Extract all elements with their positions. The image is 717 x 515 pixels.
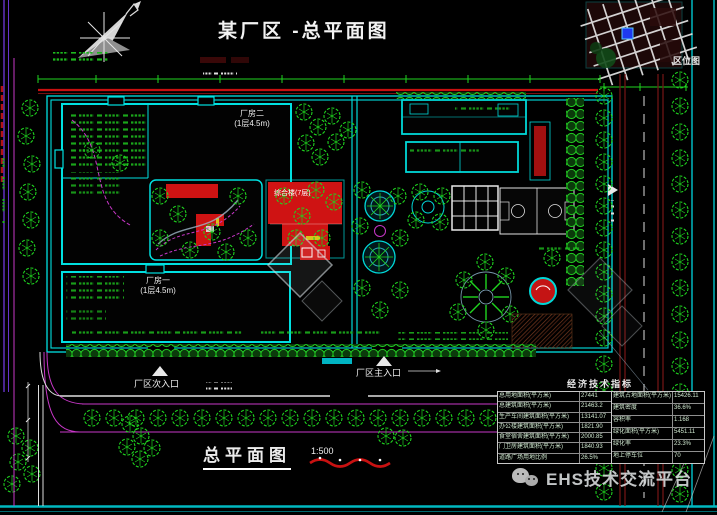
title-underline-smudge2 bbox=[231, 57, 249, 63]
pergola-structure bbox=[452, 186, 498, 230]
table-row: 地上停车位70 bbox=[612, 451, 704, 463]
central-garden bbox=[150, 180, 262, 260]
street-trees-west bbox=[18, 100, 40, 284]
table-value: 27441 bbox=[579, 392, 611, 401]
table-value: 13141.07 bbox=[579, 413, 611, 422]
table-label: 食堂宿舍建筑面积(平方米) bbox=[498, 433, 579, 442]
annotation-row bbox=[260, 330, 380, 338]
tree-cluster-corner bbox=[4, 416, 160, 492]
gazebo-circle bbox=[408, 184, 450, 230]
top-annotation bbox=[203, 68, 237, 76]
annotation bbox=[410, 146, 480, 154]
scale-bar bbox=[310, 457, 390, 467]
table-value: 26.5% bbox=[579, 454, 611, 463]
hedge-top bbox=[396, 92, 526, 99]
table-row: 总建筑面积(平方米)21463.2 bbox=[498, 401, 611, 411]
tree-cluster-top-middle bbox=[296, 104, 356, 165]
table-value: 1821.90 bbox=[579, 423, 611, 432]
table-row: 绿化面积(平方米)5451.11 bbox=[612, 427, 704, 439]
table-label: 绿化面积(平方米) bbox=[612, 428, 672, 439]
table-label: 总建筑面积(平方米) bbox=[498, 402, 579, 411]
street-trees-south bbox=[84, 410, 562, 426]
annotation-row bbox=[72, 330, 242, 338]
compass-annotation bbox=[52, 52, 108, 63]
table-row: 道路广场用地比例26.5% bbox=[498, 453, 611, 463]
table-label: 建筑密度 bbox=[612, 404, 672, 415]
red-pool bbox=[530, 278, 556, 304]
indicator-table-title: 经济技术指标 bbox=[497, 377, 703, 390]
workshop-1-name: 厂房一 bbox=[126, 276, 190, 286]
building-red-annex bbox=[530, 122, 550, 180]
table-row: 容积率1.168 bbox=[612, 415, 704, 427]
paved-plaza bbox=[512, 314, 572, 348]
building-north-east-1 bbox=[402, 100, 526, 134]
table-row: 绿化率23.3% bbox=[612, 439, 704, 451]
wechat-icon bbox=[512, 466, 540, 490]
annotation bbox=[455, 106, 511, 114]
table-row: 建筑占地面积(平方米)15426.11 bbox=[612, 392, 704, 403]
platform-watermark: EHS技术交流平台 bbox=[512, 465, 692, 490]
table-value: 70 bbox=[672, 452, 704, 463]
cad-site-plan-screenshot: 某厂区 -总平面图 区位图 厂房二 (1层4.5m) 厂房一 (1层4.5m) … bbox=[0, 0, 717, 515]
table-value: 36.6% bbox=[672, 404, 704, 415]
table-row: 门卫房建筑面积(平方米)1840.93 bbox=[498, 442, 611, 452]
table-value: 21463.2 bbox=[579, 402, 611, 411]
scale-ratio: 1:500 bbox=[311, 446, 334, 456]
table-label: 地上停车位 bbox=[612, 452, 672, 463]
table-row: 食堂宿舍建筑面积(平方米)2000.85 bbox=[498, 432, 611, 442]
annotation-row bbox=[398, 332, 508, 340]
indicator-table-right: 建筑占地面积(平方米)15426.11 建筑密度36.6% 容积率1.168 绿… bbox=[611, 392, 704, 463]
table-label: 总用地面积(平方米) bbox=[498, 392, 579, 401]
workshop-1-floors: (1层4.5m) bbox=[126, 286, 190, 296]
table-label: 绿化率 bbox=[612, 440, 672, 451]
plan-footer-title: 总平面图 bbox=[203, 441, 291, 470]
table-value: 15426.11 bbox=[672, 392, 704, 403]
table-value: 1.168 bbox=[672, 416, 704, 427]
road-name-annotation bbox=[1, 158, 9, 224]
tree bbox=[378, 428, 394, 444]
table-label: 建筑占地面积(平方米) bbox=[612, 392, 672, 403]
indicator-table: 总用地面积(平方米)27441 总建筑面积(平方米)21463.2 生产车间建筑… bbox=[497, 391, 705, 464]
basketball-court bbox=[500, 188, 574, 234]
workshop-2-floors: (1层4.5m) bbox=[220, 119, 284, 129]
table-label: 门卫房建筑面积(平方米) bbox=[498, 443, 579, 452]
drawing-title: 某厂区 -总平面图 bbox=[218, 16, 390, 43]
table-row: 办公楼建筑面积(平方米)1821.90 bbox=[498, 422, 611, 432]
table-value: 23.3% bbox=[672, 440, 704, 451]
secondary-entrance-label: 厂区次入口 bbox=[134, 377, 179, 390]
workshop-2-label: 厂房二 (1层4.5m) bbox=[220, 109, 284, 129]
west-road bbox=[14, 58, 43, 506]
inset-map-label: 区位图 bbox=[673, 54, 700, 67]
circular-plaza bbox=[450, 254, 518, 338]
indicator-table-left: 总用地面积(平方米)27441 总建筑面积(平方米)21463.2 生产车间建筑… bbox=[498, 392, 611, 463]
watermark-text: EHS技术交流平台 bbox=[546, 465, 692, 490]
table-row: 建筑密度36.6% bbox=[612, 403, 704, 415]
annotation bbox=[206, 382, 232, 390]
fountain-pools bbox=[352, 182, 408, 318]
hedge-south bbox=[66, 344, 536, 357]
site-parcel-highlight bbox=[622, 28, 633, 39]
table-value: 5451.11 bbox=[672, 428, 704, 439]
table-value: 1840.93 bbox=[579, 443, 611, 452]
inset-location-map bbox=[576, 0, 700, 89]
office-building-label: 综合楼(7层) bbox=[274, 188, 311, 198]
table-label: 道路广场用地比例 bbox=[498, 454, 579, 463]
table-row: 生产车间建筑面积(平方米)13141.07 bbox=[498, 412, 611, 422]
hedge-east bbox=[566, 98, 584, 286]
main-entrance-label: 厂区主入口 bbox=[356, 366, 401, 379]
title-underline-smudge bbox=[200, 57, 226, 63]
annotation bbox=[536, 246, 580, 254]
workshop-1-label: 厂房一 (1层4.5m) bbox=[126, 276, 190, 296]
table-row: 总用地面积(平方米)27441 bbox=[498, 392, 611, 401]
top-dimension-line bbox=[38, 75, 688, 91]
workshop-2-name: 厂房二 bbox=[220, 109, 284, 119]
table-label: 容积率 bbox=[612, 416, 672, 427]
table-label: 生产车间建筑面积(平方米) bbox=[498, 413, 579, 422]
table-value: 2000.85 bbox=[579, 433, 611, 442]
table-label: 办公楼建筑面积(平方米) bbox=[498, 423, 579, 432]
